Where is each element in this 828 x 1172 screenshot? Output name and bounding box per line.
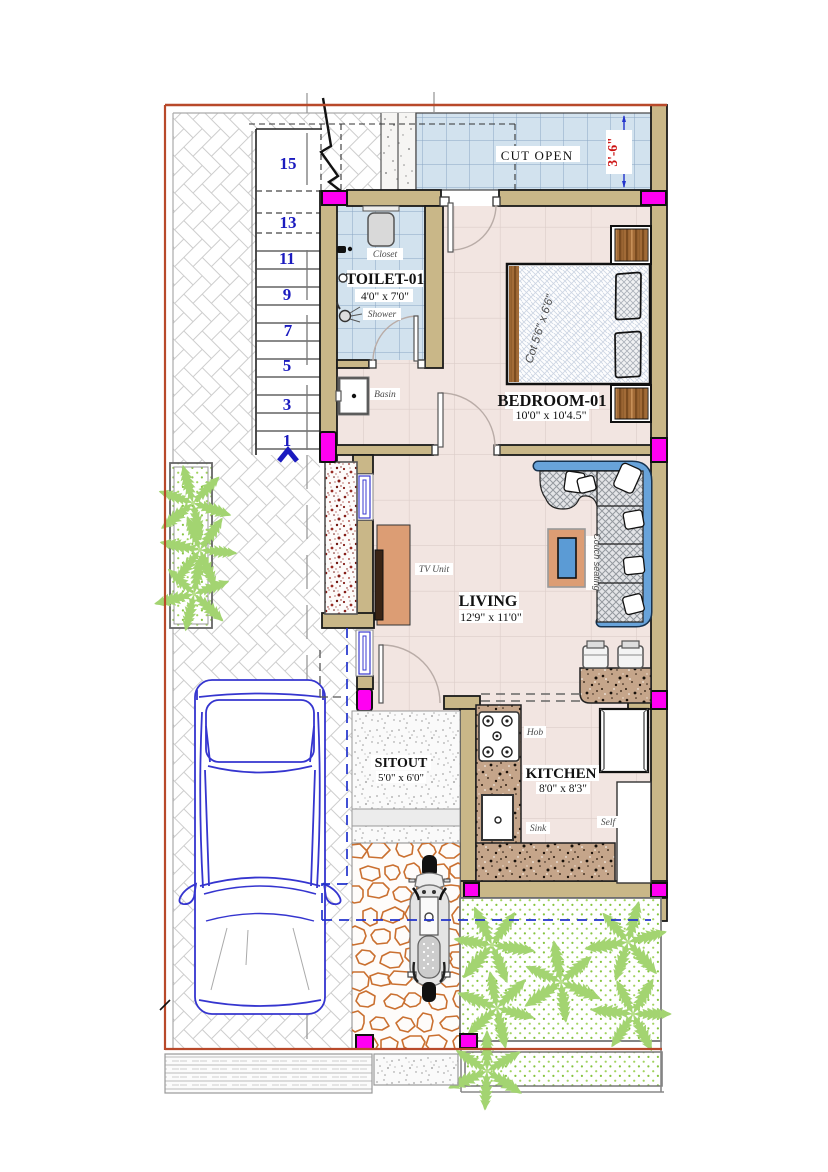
svg-text:Hob: Hob	[526, 728, 544, 738]
svg-text:SITOUT: SITOUT	[375, 756, 428, 771]
svg-text:CUT OPEN: CUT OPEN	[501, 148, 574, 163]
svg-text:Self: Self	[601, 817, 617, 828]
svg-text:TV Unit: TV Unit	[419, 565, 450, 575]
svg-text:Basin: Basin	[374, 390, 396, 400]
svg-text:11: 11	[279, 249, 295, 268]
svg-text:10'0" x 10'4.5": 10'0" x 10'4.5"	[515, 408, 586, 422]
svg-text:Sink: Sink	[530, 824, 547, 834]
svg-text:13: 13	[280, 213, 297, 232]
svg-text:Closet: Closet	[373, 250, 398, 260]
svg-text:12'9" x 11'0": 12'9" x 11'0"	[460, 610, 522, 624]
svg-text:9: 9	[283, 285, 292, 304]
svg-text:8'0" x 8'3": 8'0" x 8'3"	[539, 783, 587, 795]
svg-text:5'0" x 6'0": 5'0" x 6'0"	[378, 772, 424, 784]
svg-text:3: 3	[283, 395, 292, 414]
svg-text:5: 5	[283, 356, 292, 375]
svg-text:15: 15	[280, 154, 297, 173]
svg-text:Shower: Shower	[368, 310, 397, 320]
svg-text:TOILET-01: TOILET-01	[346, 271, 424, 288]
svg-text:1: 1	[283, 431, 292, 450]
svg-text:3'-6": 3'-6"	[605, 137, 620, 166]
svg-text:4'0" x 7'0": 4'0" x 7'0"	[361, 291, 409, 303]
svg-text:Couch seating: Couch seating	[592, 533, 602, 591]
svg-text:KITCHEN: KITCHEN	[526, 766, 597, 782]
svg-text:7: 7	[284, 321, 293, 340]
svg-text:LIVING: LIVING	[459, 593, 518, 610]
